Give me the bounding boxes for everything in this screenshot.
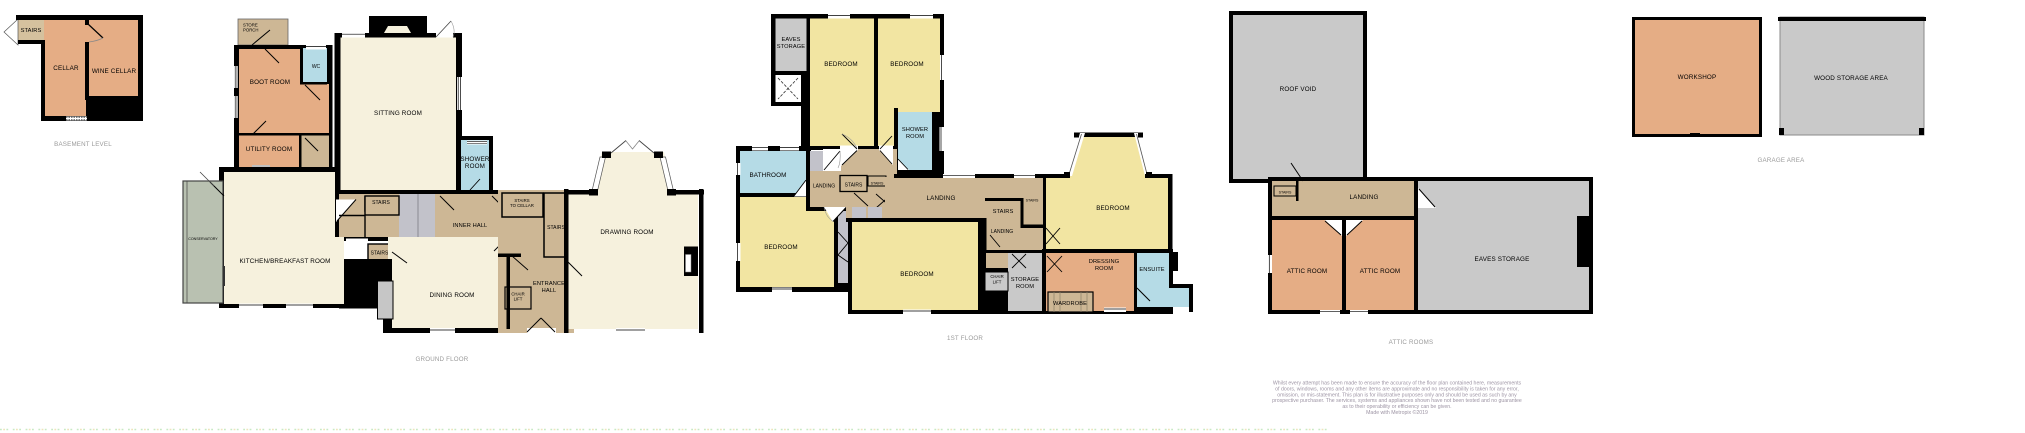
svg-text:CHAIR: CHAIR: [990, 274, 1003, 279]
svg-text:BEDROOM: BEDROOM: [900, 271, 934, 278]
svg-text:WARDROBE: WARDROBE: [1053, 301, 1087, 307]
svg-text:DRAWING ROOM: DRAWING ROOM: [600, 229, 653, 236]
svg-text:WINE CELLAR: WINE CELLAR: [92, 68, 137, 75]
svg-text:ROOM: ROOM: [465, 163, 485, 170]
svg-text:STAIRS: STAIRS: [21, 28, 42, 34]
svg-text:PORCH: PORCH: [243, 28, 259, 33]
svg-text:STAIRS: STAIRS: [1026, 199, 1039, 203]
svg-text:BEDROOM: BEDROOM: [824, 61, 858, 68]
svg-text:ROOM: ROOM: [906, 134, 924, 140]
svg-text:LIFT: LIFT: [993, 280, 1002, 285]
svg-text:UTILITY ROOM: UTILITY ROOM: [246, 146, 292, 153]
svg-text:ATTIC ROOMS: ATTIC ROOMS: [1389, 339, 1434, 346]
svg-text:WORKSHOP: WORKSHOP: [1678, 74, 1717, 81]
svg-text:ROOF VOID: ROOF VOID: [1280, 86, 1317, 93]
svg-text:BATHROOM: BATHROOM: [749, 172, 786, 179]
svg-text:DRESSING: DRESSING: [1089, 259, 1120, 265]
svg-text:SHOWER: SHOWER: [460, 156, 490, 163]
svg-text:LANDING: LANDING: [813, 184, 835, 190]
svg-text:ENTRANCE: ENTRANCE: [533, 281, 565, 287]
svg-text:INNER HALL: INNER HALL: [453, 223, 488, 229]
svg-text:STAIRS: STAIRS: [993, 209, 1014, 215]
svg-text:CELLAR: CELLAR: [53, 65, 79, 72]
svg-text:GARAGE AREA: GARAGE AREA: [1758, 157, 1806, 164]
svg-text:ROOM: ROOM: [1016, 284, 1034, 290]
svg-text:EAVES STORAGE: EAVES STORAGE: [1475, 256, 1530, 263]
svg-text:BASEMENT LEVEL: BASEMENT LEVEL: [54, 141, 112, 148]
svg-text:GROUND FLOOR: GROUND FLOOR: [416, 356, 469, 363]
svg-text:STAIRS: STAIRS: [372, 200, 390, 206]
svg-text:BEDROOM: BEDROOM: [764, 244, 798, 251]
svg-text:Made with Metropix ©2019: Made with Metropix ©2019: [1366, 409, 1428, 416]
svg-text:LIFT: LIFT: [514, 297, 523, 302]
svg-text:SHOWER: SHOWER: [902, 127, 928, 133]
svg-text:KITCHEN/BREAKFAST ROOM: KITCHEN/BREAKFAST ROOM: [239, 258, 330, 265]
svg-text:DINING ROOM: DINING ROOM: [429, 292, 474, 299]
svg-text:TO CELLAR: TO CELLAR: [510, 203, 534, 208]
svg-text:ENSUITE: ENSUITE: [1139, 267, 1164, 273]
svg-text:LANDING: LANDING: [926, 195, 955, 202]
svg-text:1ST FLOOR: 1ST FLOOR: [947, 335, 983, 342]
svg-text:WOOD STORAGE AREA: WOOD STORAGE AREA: [1814, 75, 1888, 82]
svg-text:ROOM: ROOM: [1095, 266, 1113, 272]
svg-text:SITTING ROOM: SITTING ROOM: [374, 110, 422, 117]
svg-text:STORAGE: STORAGE: [1011, 277, 1040, 283]
svg-text:BEDROOM: BEDROOM: [890, 61, 924, 68]
svg-text:STAIRS: STAIRS: [1279, 191, 1292, 195]
svg-text:BEDROOM: BEDROOM: [1096, 205, 1130, 212]
svg-text:STAIRS: STAIRS: [547, 225, 565, 231]
svg-text:HALL: HALL: [542, 288, 557, 294]
svg-text:STAIRS: STAIRS: [371, 251, 389, 257]
svg-text:STAIRS: STAIRS: [845, 183, 863, 189]
svg-text:ATTIC ROOM: ATTIC ROOM: [1287, 268, 1328, 275]
svg-text:STAIRS: STAIRS: [871, 182, 884, 186]
svg-text:ATTIC ROOM: ATTIC ROOM: [1360, 268, 1401, 275]
svg-text:WC: WC: [312, 64, 321, 70]
svg-text:CONSERVATORY: CONSERVATORY: [188, 237, 218, 241]
svg-text:STORAGE: STORAGE: [777, 44, 806, 50]
svg-text:LANDING: LANDING: [991, 229, 1013, 235]
svg-text:EAVES: EAVES: [781, 37, 800, 43]
svg-text:BOOT ROOM: BOOT ROOM: [250, 79, 290, 86]
svg-text:LANDING: LANDING: [1349, 194, 1378, 201]
